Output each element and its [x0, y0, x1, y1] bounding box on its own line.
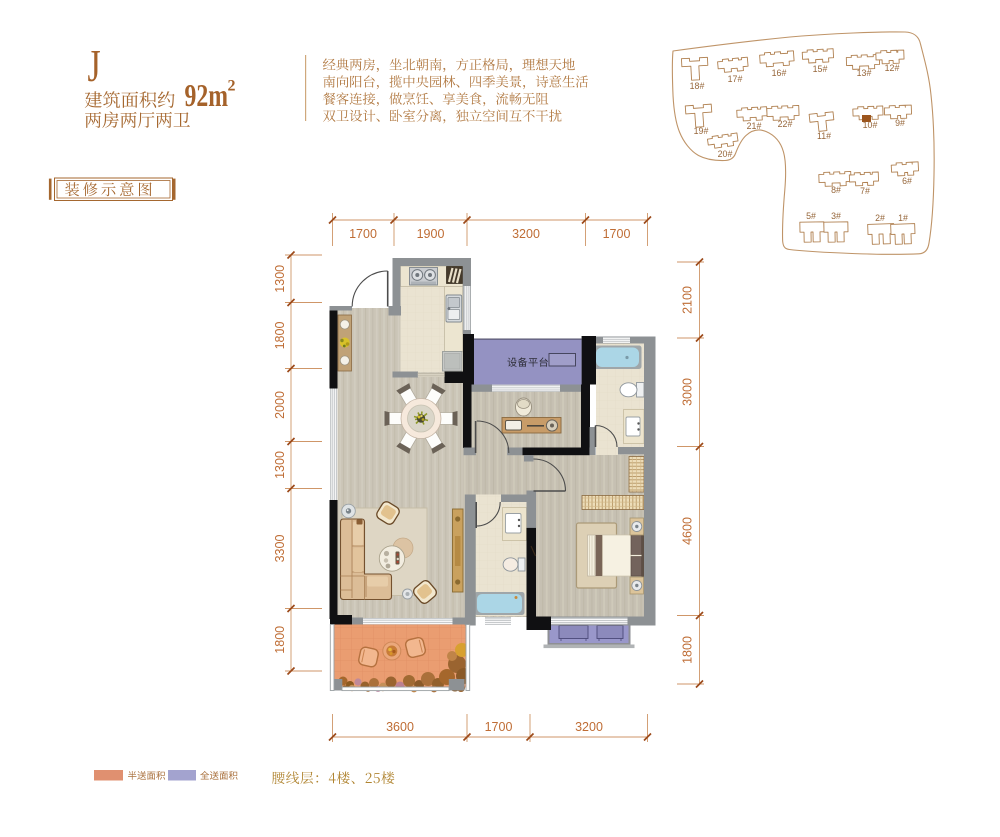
- svg-text:17#: 17#: [728, 74, 743, 84]
- svg-text:3200: 3200: [575, 720, 603, 734]
- svg-text:3600: 3600: [386, 720, 414, 734]
- svg-text:1700: 1700: [349, 227, 377, 241]
- svg-text:1800: 1800: [273, 322, 287, 350]
- svg-text:1700: 1700: [603, 227, 631, 241]
- svg-text:3000: 3000: [681, 378, 695, 406]
- svg-text:6#: 6#: [902, 176, 912, 186]
- svg-text:3200: 3200: [512, 227, 540, 241]
- svg-text:1700: 1700: [485, 720, 513, 734]
- svg-text:J: J: [88, 41, 101, 91]
- svg-text:12#: 12#: [885, 63, 900, 73]
- svg-text:19#: 19#: [694, 126, 709, 136]
- svg-text:4600: 4600: [681, 517, 695, 545]
- svg-text:1900: 1900: [417, 227, 445, 241]
- svg-text:16#: 16#: [772, 68, 787, 78]
- svg-text:18#: 18#: [690, 81, 705, 91]
- svg-text:21#: 21#: [747, 121, 762, 131]
- svg-text:8#: 8#: [831, 185, 841, 195]
- svg-text:1#: 1#: [898, 213, 908, 223]
- svg-text:9#: 9#: [895, 118, 905, 128]
- svg-text:2100: 2100: [681, 286, 695, 314]
- svg-text:15#: 15#: [813, 64, 828, 74]
- svg-text:1800: 1800: [681, 636, 695, 664]
- svg-text:92m: 92m: [185, 77, 229, 113]
- svg-text:22#: 22#: [778, 119, 793, 129]
- svg-text:7#: 7#: [860, 186, 870, 196]
- svg-text:3300: 3300: [273, 535, 287, 563]
- svg-text:3#: 3#: [831, 211, 841, 221]
- svg-text:2#: 2#: [875, 213, 885, 223]
- svg-text:10#: 10#: [863, 120, 878, 130]
- svg-text:1300: 1300: [273, 265, 287, 293]
- svg-text:2: 2: [228, 78, 236, 95]
- svg-text:1300: 1300: [273, 451, 287, 479]
- svg-text:1800: 1800: [273, 626, 287, 654]
- svg-text:13#: 13#: [857, 68, 872, 78]
- svg-text:11#: 11#: [817, 131, 831, 141]
- svg-text:5#: 5#: [806, 211, 816, 221]
- svg-text:20#: 20#: [718, 149, 733, 159]
- svg-text:2000: 2000: [273, 391, 287, 419]
